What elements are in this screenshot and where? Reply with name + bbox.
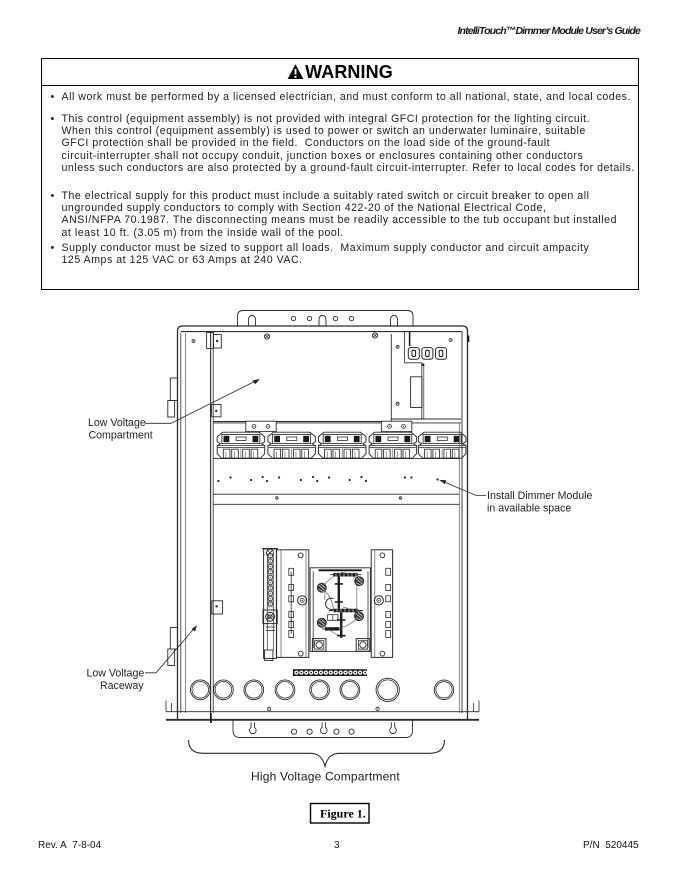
svg-text:Install Dimmer Module: Install Dimmer Module bbox=[487, 490, 592, 502]
svg-text:Compartment: Compartment bbox=[89, 430, 153, 442]
svg-text:Raceway: Raceway bbox=[100, 680, 144, 692]
svg-text:Low Voltage: Low Voltage bbox=[88, 417, 146, 429]
svg-text:Low Voltage: Low Voltage bbox=[87, 667, 145, 679]
svg-text:High Voltage Compartment: High Voltage Compartment bbox=[251, 770, 400, 784]
svg-text:in available space: in available space bbox=[487, 502, 571, 514]
svg-text:Figure 1.: Figure 1. bbox=[320, 807, 366, 821]
